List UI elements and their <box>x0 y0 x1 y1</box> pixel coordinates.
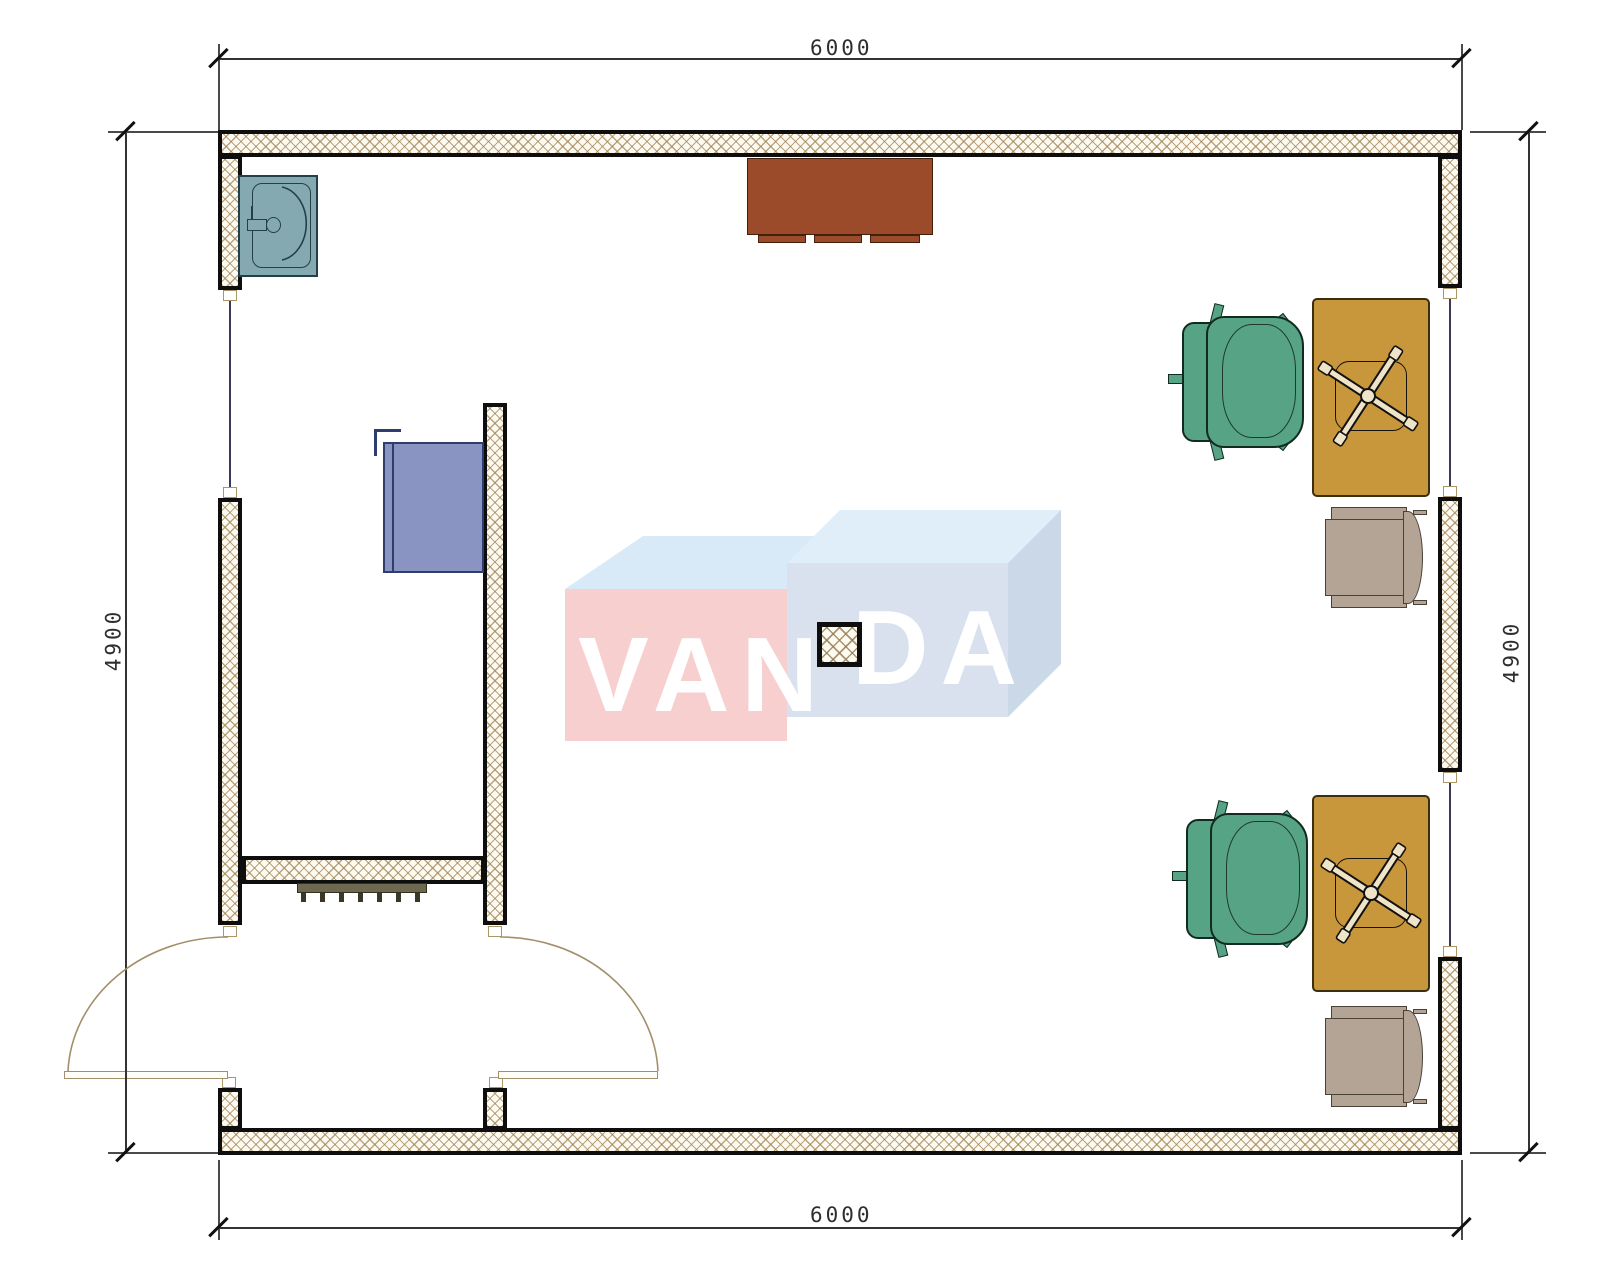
interior-door-jamb-top <box>488 926 502 937</box>
entrance-door-swing-arc <box>68 937 228 1071</box>
side-chair-seat <box>1325 1018 1409 1095</box>
right-window2-jamb-top <box>1443 772 1457 783</box>
side-chair-backrest <box>1403 1010 1423 1103</box>
side-chair-seat <box>1325 519 1409 596</box>
top-cabinet-foot-middle <box>814 235 862 243</box>
side-chair-armrest-bottom <box>1331 1094 1407 1107</box>
radiator-fin <box>301 893 306 902</box>
floor-plan-canvas: { "document": { "type": "architectural-f… <box>0 0 1600 1280</box>
interior-partition-horizontal <box>242 856 485 884</box>
office-armchair-upper <box>1178 312 1305 452</box>
blue-cabinet-hook-h <box>374 429 401 432</box>
structural-column <box>817 622 862 667</box>
right-wall-upper-segment <box>1438 155 1462 288</box>
right-window1-jamb-top <box>1443 288 1457 299</box>
side-chair-upper <box>1325 507 1423 608</box>
right-window2-jamb-bottom <box>1443 946 1457 957</box>
chair-seat-cushion <box>1226 821 1300 935</box>
task-chair-outline-lower <box>1335 858 1407 928</box>
interior-partition-door-stub <box>483 1088 507 1130</box>
side-chair-leg <box>1413 510 1427 515</box>
radiator-fin <box>358 893 363 902</box>
top-cabinet-foot-left <box>758 235 806 243</box>
dimension-label-bottom: 6000 <box>810 1203 873 1227</box>
blue-storage-cabinet <box>383 442 484 573</box>
task-chair-outline-upper <box>1335 361 1407 431</box>
radiator-fin <box>415 893 420 902</box>
side-chair-lower <box>1325 1006 1423 1107</box>
blue-cabinet-hinge-line <box>392 444 394 571</box>
top-cabinet <box>747 158 933 235</box>
right-wall-middle-segment <box>1438 497 1462 772</box>
dimension-label-top: 6000 <box>810 36 873 60</box>
left-window-jamb-bottom <box>223 487 237 498</box>
dimension-label-left: 4900 <box>101 609 125 672</box>
top-exterior-wall <box>218 130 1462 157</box>
right-window2-glazing <box>1449 783 1451 946</box>
blue-cabinet-hook-v <box>374 429 377 456</box>
watermark-text-da: DA <box>852 588 1029 709</box>
sink-faucet-stem <box>251 206 253 220</box>
left-wall-middle-segment <box>218 498 242 925</box>
radiator-fin <box>320 893 325 902</box>
right-dimension-line <box>1528 131 1530 1152</box>
left-wall-door-stub <box>218 1088 242 1130</box>
side-chair-armrest-bottom <box>1331 595 1407 608</box>
side-chair-leg <box>1413 1009 1427 1014</box>
entrance-door-leaf <box>64 1071 228 1079</box>
right-wall-lower-segment <box>1438 957 1462 1130</box>
sink-faucet <box>247 219 267 231</box>
radiator <box>297 883 427 893</box>
bottom-dimension-line <box>218 1227 1462 1229</box>
side-chair-leg <box>1413 600 1427 605</box>
radiator-fin <box>396 893 401 902</box>
extension-line <box>1470 1152 1546 1154</box>
dimension-label-right: 4900 <box>1499 621 1523 684</box>
interior-door-leaf <box>498 1071 658 1079</box>
chair-seat-cushion <box>1222 324 1296 438</box>
bottom-exterior-wall <box>218 1128 1462 1155</box>
interior-door-swing-arc <box>500 937 658 1071</box>
right-window1-glazing <box>1449 299 1451 486</box>
radiator-fin <box>339 893 344 902</box>
sink-faucet-knob <box>266 217 281 233</box>
left-window-glazing <box>229 301 231 487</box>
side-chair-backrest <box>1403 511 1423 604</box>
side-chair-leg <box>1413 1099 1427 1104</box>
top-cabinet-foot-right <box>870 235 920 243</box>
right-window1-jamb-bottom <box>1443 486 1457 497</box>
extension-line <box>1470 131 1546 133</box>
office-armchair-lower <box>1182 809 1309 949</box>
radiator-fin <box>377 893 382 902</box>
interior-partition-vertical <box>483 403 507 925</box>
entrance-door-jamb-top <box>223 926 237 937</box>
watermark-text-van: VAN <box>578 615 830 736</box>
left-window-jamb-top <box>223 290 237 301</box>
